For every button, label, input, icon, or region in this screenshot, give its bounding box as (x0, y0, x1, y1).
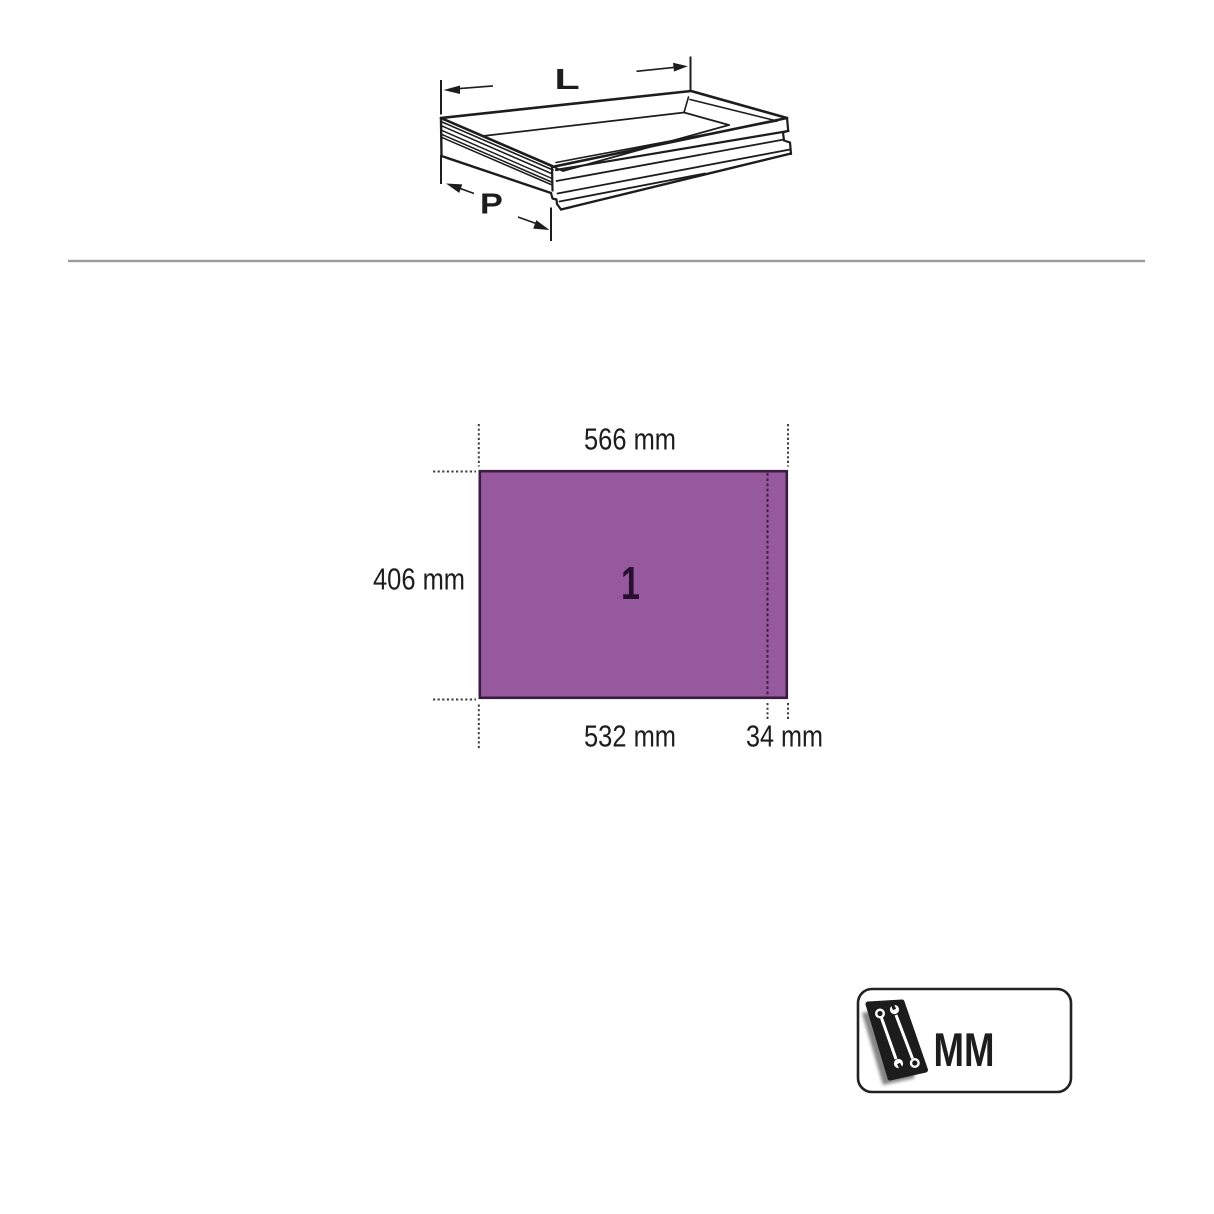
svg-text:1: 1 (621, 557, 640, 609)
svg-text:P: P (480, 187, 503, 220)
svg-text:566 mm: 566 mm (584, 422, 676, 457)
svg-text:L: L (555, 63, 580, 96)
svg-text:MM: MM (934, 1023, 995, 1076)
svg-text:34 mm: 34 mm (746, 719, 823, 754)
svg-text:406 mm: 406 mm (373, 562, 465, 597)
svg-text:532 mm: 532 mm (584, 719, 676, 754)
